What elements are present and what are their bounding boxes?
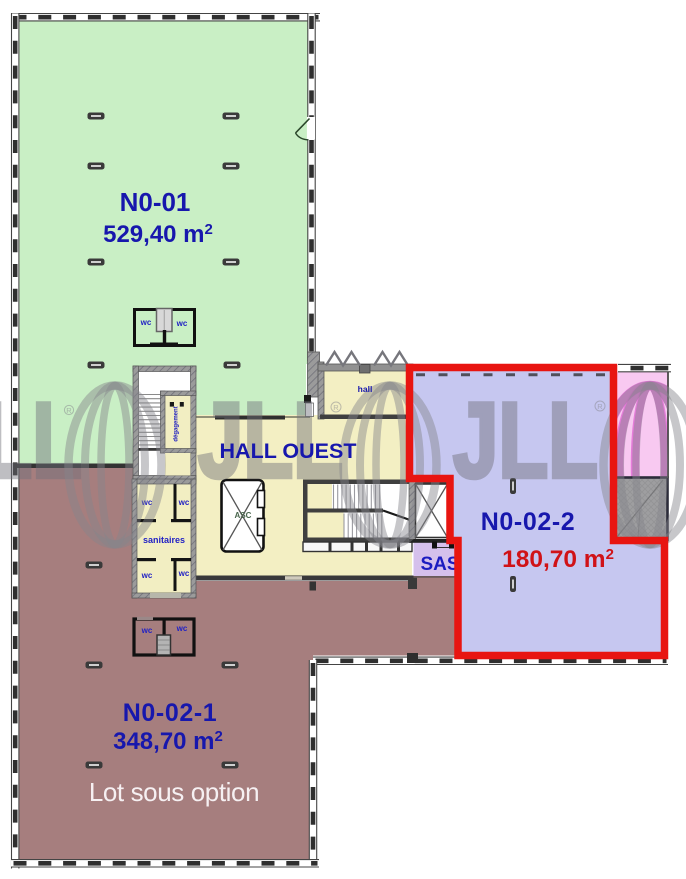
svg-text:hall: hall	[358, 384, 373, 394]
svg-text:ASC: ASC	[235, 511, 252, 520]
svg-text:180,70 m2: 180,70 m2	[502, 546, 614, 573]
svg-text:JLL: JLL	[453, 380, 598, 500]
svg-text:wc: wc	[178, 569, 190, 578]
svg-text:wc: wc	[176, 319, 188, 328]
svg-text:348,70 m2: 348,70 m2	[113, 728, 223, 755]
svg-text:N0-01: N0-01	[120, 187, 191, 217]
svg-text:N0-02-2: N0-02-2	[481, 508, 576, 536]
svg-text:R: R	[66, 406, 72, 415]
svg-text:wc: wc	[178, 498, 190, 507]
svg-text:wc: wc	[140, 318, 152, 327]
svg-text:R: R	[333, 403, 339, 412]
svg-text:wc: wc	[176, 624, 188, 633]
svg-text:Lot sous option: Lot sous option	[89, 777, 259, 807]
svg-text:HALL OUEST: HALL OUEST	[220, 439, 357, 463]
svg-text:529,40 m2: 529,40 m2	[103, 221, 213, 248]
svg-text:SAS: SAS	[420, 554, 459, 575]
svg-text:wc: wc	[141, 571, 153, 580]
svg-text:N0-02-1: N0-02-1	[123, 699, 218, 727]
svg-text:R: R	[597, 402, 603, 411]
svg-text:sanitaires: sanitaires	[143, 535, 185, 545]
svg-text:wc: wc	[141, 626, 153, 635]
svg-text:dégagement: dégagement	[174, 406, 180, 441]
